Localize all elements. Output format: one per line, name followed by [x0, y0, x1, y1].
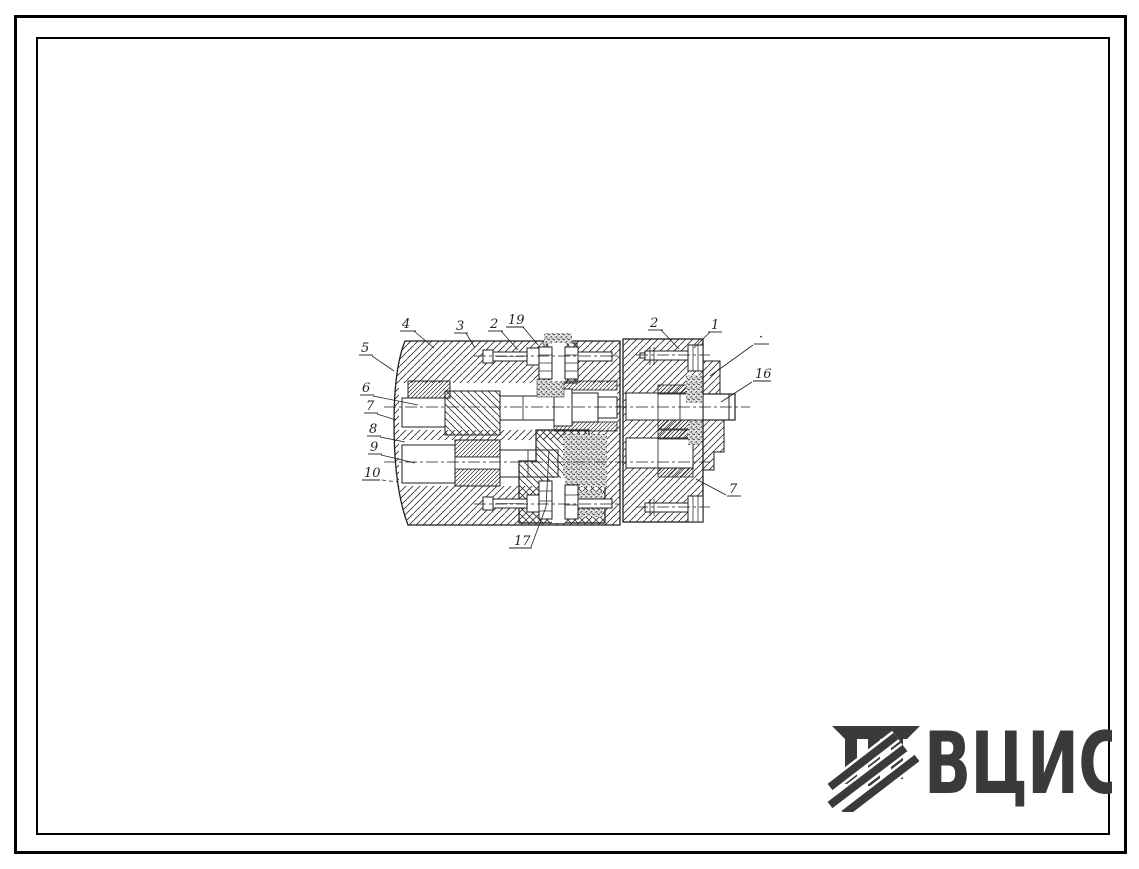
- part-label-5: 5: [361, 341, 369, 356]
- part-label-2b: 2: [649, 316, 658, 331]
- part-label-17: 17: [514, 534, 531, 549]
- part-label-9: 9: [370, 440, 378, 455]
- part-label-10: 10: [364, 466, 381, 481]
- part-label-7b: 7: [729, 482, 738, 497]
- logo-text: ВЦИС: [924, 713, 1112, 812]
- part-label-7a: 7: [366, 399, 375, 414]
- part-label-16: 16: [755, 367, 772, 382]
- part-label-4: 4: [401, 317, 410, 332]
- assembly-cross-section-drawing: 4 3 2 19 2 1 · 16 7 17 5 6 7 8 9 10: [358, 303, 788, 568]
- part-label-3: 3: [456, 319, 464, 334]
- part-label-6: 6: [362, 381, 370, 396]
- hatched-column-icon: [830, 726, 920, 812]
- part-label-19: 19: [508, 313, 525, 328]
- part-label-2a: 2: [489, 317, 498, 332]
- part-label-8: 8: [369, 422, 377, 437]
- right-flange-lower: [703, 420, 724, 470]
- right-flange-upper: [703, 361, 720, 394]
- vcis-logo: ВЦИС: [826, 712, 1112, 812]
- part-label-faint: ·: [759, 330, 763, 345]
- sheet: 4 3 2 19 2 1 · 16 7 17 5 6 7 8 9 10: [0, 0, 1139, 869]
- part-label-1: 1: [711, 318, 719, 333]
